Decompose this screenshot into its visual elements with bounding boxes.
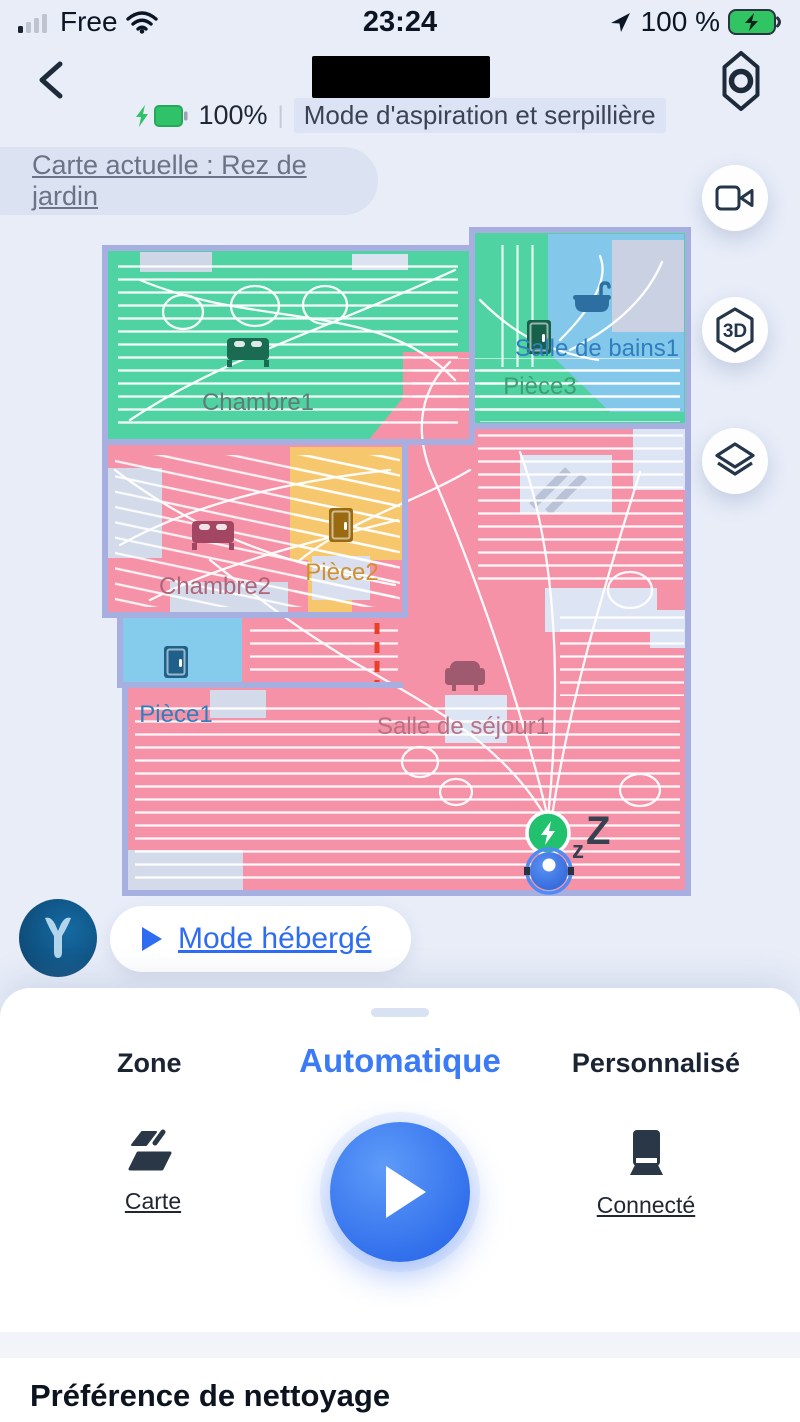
room-label-salle-de-bains1: Salle de bains1	[515, 335, 679, 362]
robot-battery-indicator	[134, 104, 188, 128]
map-layers-icon	[713, 441, 757, 481]
signal-strength-icon	[18, 10, 52, 34]
play-icon	[386, 1166, 426, 1218]
tab-automatique-active[interactable]: Automatique	[299, 1042, 501, 1080]
hosted-mode-button[interactable]: Mode hébergé	[110, 906, 411, 972]
tab-personnalise[interactable]: Personnalisé	[572, 1048, 740, 1079]
room-label-chambre2: Chambre2	[159, 573, 271, 600]
sheet-drag-handle[interactable]	[371, 1008, 429, 1017]
3d-view-icon: 3D	[712, 307, 758, 353]
clock: 23:24	[363, 6, 437, 39]
door-icon	[329, 508, 353, 542]
map-edit-label: Carte	[125, 1188, 181, 1215]
sleep-indicator-big: Z	[586, 809, 610, 853]
separator: |	[278, 102, 284, 130]
play-small-icon	[142, 927, 162, 951]
room-label-salle-de-sejour1: Salle de séjour1	[377, 713, 549, 740]
map-icon	[126, 1128, 180, 1174]
robot-battery-icon	[154, 105, 188, 127]
map-layers-button[interactable]	[702, 428, 768, 494]
battery-charging-icon	[728, 9, 782, 35]
device-status-row: 100% | Mode d'aspiration et serpillière	[0, 98, 800, 133]
3d-view-button[interactable]: 3D	[702, 297, 768, 363]
map-edit-button[interactable]: Carte	[103, 1128, 203, 1215]
section-divider	[0, 1332, 800, 1358]
cleaning-preference-section: Préférence de nettoyage	[0, 1358, 800, 1422]
video-camera-icon	[715, 184, 755, 212]
status-bar: Free 23:24 100 %	[0, 0, 800, 44]
room-label-piece3: Pièce3	[503, 373, 576, 400]
robot-position-marker[interactable]	[524, 849, 574, 893]
tab-zone[interactable]: Zone	[117, 1048, 182, 1079]
dock-status-button[interactable]: Connecté	[596, 1128, 696, 1219]
room-label-piece1: Pièce1	[139, 701, 212, 728]
dock-station-icon	[622, 1128, 670, 1178]
robot-vacuum-app-screen: Free 23:24 100 %	[0, 0, 800, 1422]
back-button[interactable]	[30, 58, 74, 102]
redacted-device-name	[312, 56, 490, 98]
carrier-label: Free	[60, 6, 118, 38]
robot-avatar[interactable]	[18, 898, 98, 978]
sleep-indicator-small: z	[572, 837, 584, 864]
dock-status-label: Connecté	[597, 1192, 695, 1219]
room-label-chambre1: Chambre1	[202, 389, 314, 416]
room-label-piece2: Pièce2	[305, 559, 378, 586]
current-map-label: Carte actuelle : Rez de jardin	[32, 150, 378, 212]
hosted-mode-label: Mode hébergé	[178, 922, 371, 956]
section-title: Préférence de nettoyage	[30, 1378, 390, 1414]
location-services-icon	[609, 10, 633, 34]
charging-bolt-icon	[134, 104, 150, 128]
robot-battery-percent: 100%	[198, 100, 267, 131]
video-camera-button[interactable]	[702, 165, 768, 231]
start-cleaning-button[interactable]	[330, 1122, 470, 1262]
wifi-icon	[126, 10, 158, 34]
current-map-selector[interactable]: Carte actuelle : Rez de jardin	[0, 147, 378, 215]
battery-percent-label: 100 %	[641, 6, 720, 38]
cleaning-mode-label: Mode d'aspiration et serpillière	[294, 98, 666, 133]
door-icon	[164, 646, 188, 678]
3d-label: 3D	[723, 321, 747, 342]
